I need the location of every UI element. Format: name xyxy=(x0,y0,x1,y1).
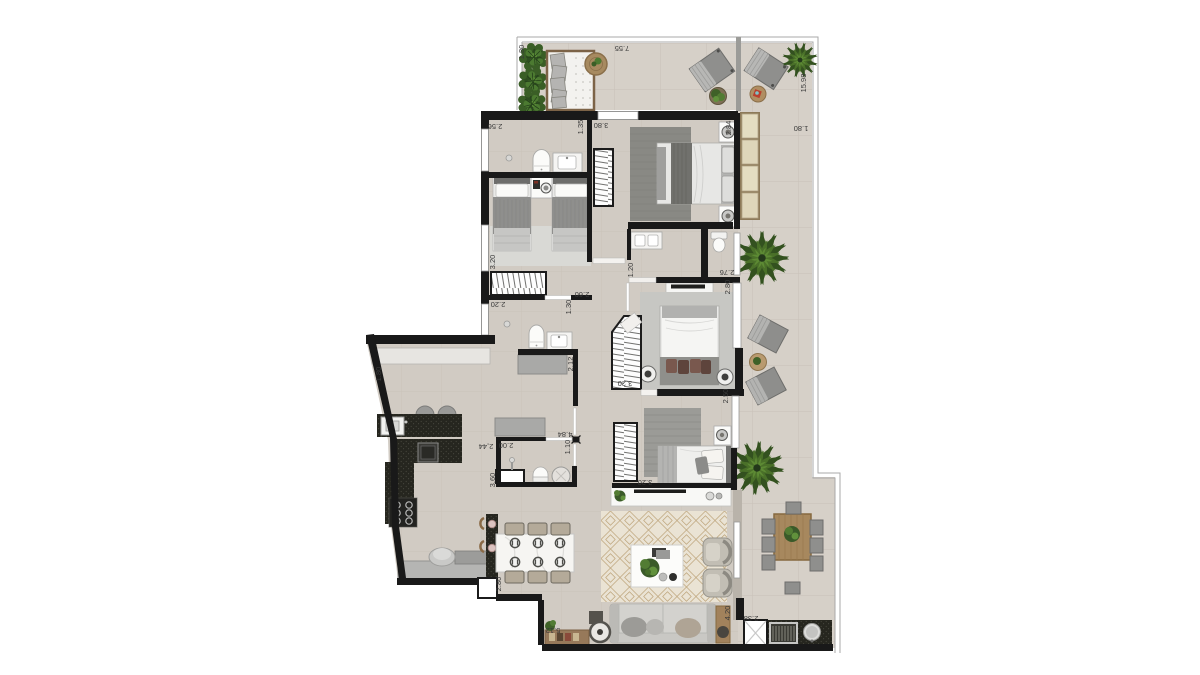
svg-text:5.12: 5.12 xyxy=(546,626,561,635)
svg-text:3.60: 3.60 xyxy=(488,473,497,488)
svg-text:2.80: 2.80 xyxy=(723,280,732,295)
svg-text:2.80: 2.80 xyxy=(494,577,503,592)
svg-text:2.50: 2.50 xyxy=(721,389,730,404)
svg-text:1.35: 1.35 xyxy=(576,120,585,135)
svg-text:1.20: 1.20 xyxy=(626,263,635,278)
svg-text:15.98: 15.98 xyxy=(799,74,808,93)
svg-text:4.20: 4.20 xyxy=(723,606,732,621)
svg-text:2,44: 2,44 xyxy=(479,442,494,451)
svg-text:1.80: 1.80 xyxy=(374,367,383,382)
svg-text:2.20: 2.20 xyxy=(491,300,506,309)
svg-text:2.60: 2.60 xyxy=(575,290,590,299)
svg-text:2.56: 2.56 xyxy=(488,122,503,131)
svg-text:2.00: 2.00 xyxy=(499,441,514,450)
svg-text:1.80: 1.80 xyxy=(517,45,526,60)
svg-text:1.30: 1.30 xyxy=(564,300,573,315)
svg-text:7.55: 7.55 xyxy=(615,44,630,53)
svg-text:3.20: 3.20 xyxy=(638,478,653,487)
svg-text:1.80: 1.80 xyxy=(794,124,809,133)
svg-text:2.12: 2.12 xyxy=(566,357,575,372)
svg-text:3.80: 3.80 xyxy=(594,121,609,130)
svg-text:3.20: 3.20 xyxy=(488,255,497,270)
svg-text:3.20: 3.20 xyxy=(618,379,633,388)
svg-text:4.84: 4.84 xyxy=(558,430,573,439)
svg-text:2.84: 2.84 xyxy=(724,121,733,136)
svg-text:2.76: 2.76 xyxy=(720,268,735,277)
svg-text:1.10: 1.10 xyxy=(563,440,572,455)
svg-text:2.38: 2.38 xyxy=(744,614,759,623)
